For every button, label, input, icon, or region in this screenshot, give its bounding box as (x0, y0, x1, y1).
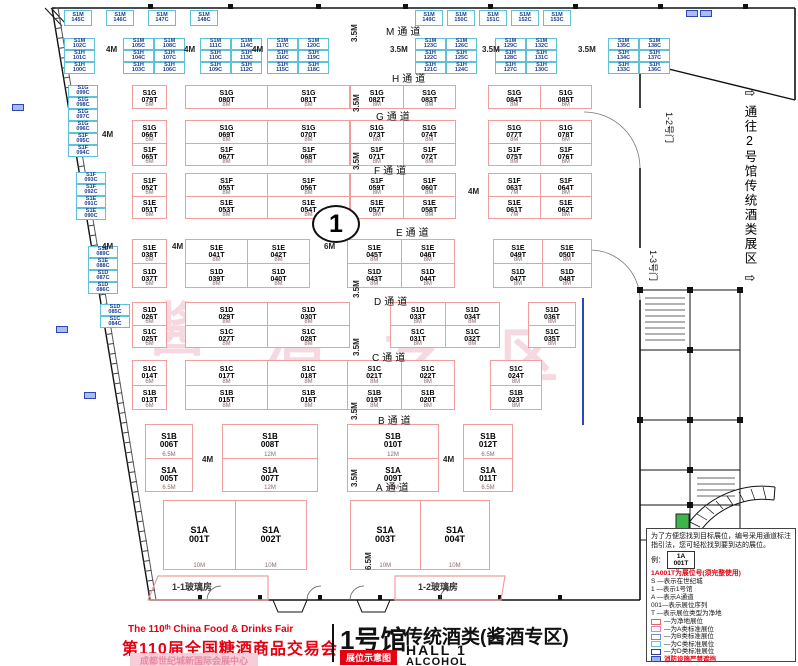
legend-note: 1A001T为展位号(须完整使用) (651, 570, 791, 578)
dimension-label-vertical: 3.5M (352, 280, 361, 298)
booth-column: S1G077T8MS1F075T8M (489, 121, 540, 165)
booth-s1h-122c[interactable]: S1H122C (415, 50, 446, 62)
booth-width-label: 8M (543, 281, 591, 287)
booth-width-label: 6M (133, 281, 166, 287)
legend-key-line: A —表示A通道 (651, 594, 791, 602)
booth-s1c-018t[interactable]: S1C018T8M (268, 361, 349, 385)
booth-column: S1C017T8MS1B015T8M (186, 361, 267, 409)
booth-s1a-003t[interactable]: S1A003T10M (351, 501, 420, 569)
booth-id: S1A001T (189, 526, 210, 544)
booth-column: S1A004T10M (420, 501, 490, 569)
fire-equipment-icon (700, 10, 712, 17)
booth-width-label: 8M (186, 341, 267, 347)
booth-s1c-022t[interactable]: S1C022T8M (402, 361, 455, 385)
booth-s1e-046t[interactable]: S1E046T8M (402, 240, 455, 263)
booth-s1m-147c[interactable]: S1M147C (148, 10, 176, 26)
booth-s1h-137c[interactable]: S1H137C (639, 50, 670, 62)
booth-s1h-106c[interactable]: S1H106C (154, 62, 185, 74)
booth-column: S1A001T10M (164, 501, 235, 569)
booth-s1h-125c[interactable]: S1H125C (446, 50, 477, 62)
booth-id: S1B012T (479, 433, 497, 449)
venue-name: 成都世纪城新国际会展中心 (130, 653, 258, 666)
booth-width-label: 8M (186, 102, 267, 108)
booth-s1m-152c[interactable]: S1M152C (511, 10, 539, 26)
booth-s1m-111c[interactable]: S1M111C (200, 38, 231, 50)
booth-column: S1D036T8MS1C035T8M (529, 303, 575, 347)
booth-s1b-012t[interactable]: S1B012T6.5M (464, 425, 512, 458)
corridor-text: 通往2号馆传统酒类展区 (741, 101, 760, 269)
booth-s1h-104c[interactable]: S1H104C (123, 50, 154, 62)
booth-column: S1G066T6MS1F065T6M (133, 121, 166, 165)
booth-column: S1D034T8MS1C032T8M (445, 303, 500, 347)
door-1-3-label: 1-3号门 (647, 250, 660, 281)
booth-s1m-132c[interactable]: S1M132C (526, 38, 557, 50)
booth-block: S1E045T8MS1D043T8MS1E046T8MS1D044T8M (347, 239, 455, 288)
booth-s1c-027t[interactable]: S1C027T8M (186, 325, 267, 348)
booth-s1g-070t[interactable]: S1G070T8M (268, 121, 349, 143)
booth-s1h-110c[interactable]: S1H110C (200, 50, 231, 62)
booth-column: S1D029T8MS1C027T8M (186, 303, 267, 347)
booth-id: S1B006T (160, 433, 178, 449)
booth-width-label: 8M (404, 159, 456, 165)
booth-width-label: 10M (351, 563, 420, 569)
legend-type-list: —为净地展位—为A类标准展位—为B类标准展位—为C类标准展位—为D类标准展位消防… (651, 618, 791, 663)
glass-house-1-label: 1-1玻璃房 (172, 580, 212, 593)
booth-block: S1E041T8MS1D039T8MS1E042T8MS1D040T8M (185, 239, 310, 288)
booth-width-label: 8M (494, 281, 542, 287)
booth-s1h-109c[interactable]: S1H109C (200, 62, 231, 74)
booth-s1f-068t[interactable]: S1F068T8M (268, 143, 349, 166)
aisle-label: G通道 (376, 108, 413, 123)
booth-s1e-041t[interactable]: S1E041T8M (186, 240, 247, 263)
booth-block: S1G079T6M (132, 85, 167, 109)
booth-s1c-031t[interactable]: S1C031T8M (391, 325, 445, 348)
booth-s1m-153c[interactable]: S1M153C (543, 10, 571, 26)
booth-s1e-051t[interactable]: S1E051T6M (133, 196, 166, 219)
booth-s1g-078t[interactable]: S1G078T6M (541, 121, 592, 143)
legend-swatch (651, 634, 661, 640)
booth-block: S1D026T6MS1C025T6M (132, 302, 167, 348)
booth-s1m-138c[interactable]: S1M138C (639, 38, 670, 50)
booth-s1e-090c[interactable]: S1E090C (76, 208, 106, 220)
booth-s1f-076t[interactable]: S1F076T6M (541, 143, 592, 166)
booth-s1g-080t[interactable]: S1G080T8M (186, 86, 267, 108)
booth-width-label: 6M (541, 159, 592, 165)
booth-id: S1A004T (444, 526, 465, 544)
booth-s1m-123c[interactable]: S1M123C (415, 38, 446, 50)
booth-column: S1F059T8MS1E057T8M (351, 174, 403, 218)
booth-s1g-081t[interactable]: S1G081T8M (268, 86, 349, 108)
booth-s1e-057t[interactable]: S1E057T8M (351, 196, 403, 219)
booth-column: S1G078T6MS1F076T6M (540, 121, 592, 165)
booth-s1m-135c[interactable]: S1M135C (608, 38, 639, 50)
booth-block: S1B012T6.5MS1A011T6.5M (463, 424, 513, 492)
booth-s1a-001t[interactable]: S1A001T10M (164, 501, 235, 569)
booth-block: S1E038T6MS1D037T6M (132, 239, 167, 288)
booth-block: S1F052T6MS1E051T6M (132, 173, 167, 219)
dimension-label-vertical: 3.5M (352, 338, 361, 356)
booth-s1m-102c[interactable]: S1M102C (64, 38, 95, 50)
booth-width-label: 8M (268, 159, 349, 165)
booth-s1d-087c[interactable]: S1D087C (88, 270, 118, 282)
arrow-right-icon: ⇨ (740, 271, 760, 284)
booth-s1f-095c[interactable]: S1F095C (68, 133, 98, 145)
booth-column: S1G069T8MS1F067T8M (186, 121, 267, 165)
aisle-label: D通道 (374, 293, 410, 308)
dimension-label: 4M (102, 242, 113, 251)
booth-s1d-044t[interactable]: S1D044T8M (402, 263, 455, 287)
booth-width-label: 6M (541, 102, 592, 108)
legend-example-top: 1A (677, 553, 685, 560)
booth-id: S1A011T (479, 467, 497, 483)
dimension-label-vertical: 3.5M (352, 152, 361, 170)
booth-column: S1G085T6M (540, 86, 592, 108)
booth-s1c-017t[interactable]: S1C017T8M (186, 361, 267, 385)
booth-s1m-151c[interactable]: S1M151C (479, 10, 507, 26)
booth-width-label: 8M (446, 341, 500, 347)
booth-column: S1E050T8MS1D048T8M (542, 240, 591, 287)
booth-block: S1C014T6MS1B013T6M (132, 360, 167, 410)
dimension-label: 4M (202, 455, 213, 464)
booth-s1g-079t[interactable]: S1G079T6M (133, 86, 166, 108)
booth-width-label: 8M (248, 281, 309, 287)
booth-block: S1D029T8MS1C027T8MS1D030T8MS1C028T8M (185, 302, 350, 348)
booth-column: S1D033T8MS1C031T8M (391, 303, 445, 347)
booth-width-label: 6M (133, 212, 166, 218)
booth-s1d-047t[interactable]: S1D047T8M (494, 263, 542, 287)
booth-column: S1F052T6MS1E051T6M (133, 174, 166, 218)
dimension-label: 4M (252, 45, 263, 54)
booth-s1e-053t[interactable]: S1E053T8M (186, 196, 267, 219)
booth-block: S1D036T8MS1C035T8M (528, 302, 576, 348)
booth-id: S1A002T (260, 526, 281, 544)
booth-s1g-073t[interactable]: S1G073T8M (351, 121, 403, 143)
booth-width-label: 8M (541, 212, 592, 218)
booth-s1d-029t[interactable]: S1D029T8M (186, 303, 267, 325)
booth-s1h-115c[interactable]: S1H115C (267, 62, 298, 74)
dimension-label-vertical: 6.5M (364, 552, 373, 570)
booth-width-label: 6M (133, 403, 166, 409)
booth-id: S1B008T (261, 433, 279, 449)
booth-width-label: 6M (133, 102, 166, 108)
booth-block: S1C024T8MS1B023T8M (490, 360, 542, 410)
arrow-right-icon: ⇨ (740, 86, 760, 99)
dimension-label-vertical: 3.5M (350, 469, 359, 487)
booth-s1d-037t[interactable]: S1D037T6M (133, 263, 166, 287)
booth-width-label: 8M (186, 212, 267, 218)
dimension-label-vertical: 3.5M (352, 94, 361, 112)
booth-width-label: 6M (133, 341, 166, 347)
booth-width-label: 6M (133, 159, 166, 165)
booth-block: S1E049T8MS1D047T8MS1E050T8MS1D048T8M (493, 239, 592, 288)
booth-s1a-004t[interactable]: S1A004T10M (421, 501, 490, 569)
dimension-label: 3.5M (390, 45, 408, 54)
booth-s1e-042t[interactable]: S1E042T8M (248, 240, 309, 263)
booth-s1g-097c[interactable]: S1G097C (68, 109, 98, 121)
booth-column: S1B006T6.5MS1A005T6.5M (146, 425, 192, 491)
booth-width-label: 8M (268, 403, 349, 409)
legend-key-line: 001—表示展位序列 (651, 602, 791, 610)
aisle-label: B通道 (378, 412, 414, 427)
booth-s1g-077t[interactable]: S1G077T8M (489, 121, 540, 143)
booth-width-label: 12M (223, 485, 317, 491)
booth-s1b-020t[interactable]: S1B020T8M (402, 385, 455, 410)
booth-column: S1F063T7MS1E061T7M (489, 174, 540, 218)
dimension-label: 3.5M (482, 45, 500, 54)
booth-s1f-092c[interactable]: S1F092C (76, 184, 106, 196)
booth-width-label: 7M (489, 212, 540, 218)
legend-intro: 为了方便您找到目标展位，编号采用通道标注指引法，您可轻松找到要到达的展位。 (651, 532, 791, 550)
booth-s1h-119c[interactable]: S1H119C (298, 50, 329, 62)
booth-s1f-055t[interactable]: S1F055T8M (186, 174, 267, 196)
booth-width-label: 8M (489, 102, 540, 108)
booth-s1a-007t[interactable]: S1A007T12M (223, 458, 317, 492)
booth-s1h-131c[interactable]: S1H131C (526, 50, 557, 62)
booth-s1g-084t[interactable]: S1G084T8M (489, 86, 540, 108)
corridor-note: ⇨ 通往2号馆传统酒类展区 ⇨ (740, 86, 760, 284)
booth-column: S1C022T8MS1B020T8M (401, 361, 455, 409)
booth-block: S1G069T8MS1F067T8MS1G070T8MS1F068T8M (185, 120, 350, 166)
booth-s1c-021t[interactable]: S1C021T8M (348, 361, 401, 385)
booth-column: S1E042T8MS1D040T8M (247, 240, 309, 287)
legend-example-bottom: 001T (674, 560, 689, 567)
booth-s1m-148c[interactable]: S1M148C (190, 10, 218, 26)
booth-s1d-034t[interactable]: S1D034T8M (446, 303, 500, 325)
legend-type-label: —为净地展位 (664, 618, 703, 626)
dimension-label: 4M (468, 187, 479, 196)
booth-s1f-093c[interactable]: S1F093C (76, 172, 106, 184)
booth-s1b-006t[interactable]: S1B006T6.5M (146, 425, 192, 458)
booth-s1h-127c[interactable]: S1H127C (495, 62, 526, 74)
dimension-label: 3.5M (578, 45, 596, 54)
booth-s1e-062t[interactable]: S1E062T8M (541, 196, 592, 219)
booth-s1f-052t[interactable]: S1F052T6M (133, 174, 166, 196)
booth-s1f-067t[interactable]: S1F067T8M (186, 143, 267, 166)
booth-width-label: 8M (402, 281, 455, 287)
booth-s1h-116c[interactable]: S1H116C (267, 50, 298, 62)
booth-s1a-005t[interactable]: S1A005T6.5M (146, 458, 192, 492)
booth-s1f-072t[interactable]: S1F072T8M (404, 143, 456, 166)
booth-width-label: 8M (489, 159, 540, 165)
booth-block: S1G066T6MS1F065T6M (132, 120, 167, 166)
booth-s1h-136c[interactable]: S1H136C (639, 62, 670, 74)
booth-block: S1C021T8MS1B019T8MS1C022T8MS1B020T8M (347, 360, 455, 410)
legend-type-label: —为D类标准展位 (664, 648, 714, 656)
booth-s1e-091c[interactable]: S1E091C (76, 196, 106, 208)
booth-s1d-030t[interactable]: S1D030T8M (268, 303, 349, 325)
booth-s1m-146c[interactable]: S1M146C (106, 10, 134, 26)
glass-house-2-label: 1-2玻璃房 (418, 580, 458, 593)
booth-s1d-036t[interactable]: S1D036T8M (529, 303, 575, 325)
booth-s1m-117c[interactable]: S1M117C (267, 38, 298, 50)
dimension-label: 4M (172, 242, 183, 251)
legend: 为了方便您找到目标展位，编号采用通道标注指引法，您可轻松找到要到达的展位。 例：… (646, 528, 796, 662)
booth-s1h-118c[interactable]: S1H118C (298, 62, 329, 74)
booth-s1b-023t[interactable]: S1B023T8M (491, 385, 541, 410)
booth-column: S1E041T8MS1D039T8M (186, 240, 247, 287)
booth-s1d-039t[interactable]: S1D039T8M (186, 263, 247, 287)
dimension-label: 4M (102, 130, 113, 139)
legend-type-label: —为C类标准展位 (664, 641, 714, 649)
booth-s1c-014t[interactable]: S1C014T6M (133, 361, 166, 385)
booth-s1b-013t[interactable]: S1B013T6M (133, 385, 166, 410)
booth-width-label: 10M (164, 563, 235, 569)
booth-s1g-099c[interactable]: S1G099C (68, 85, 98, 97)
booth-s1c-024t[interactable]: S1C024T8M (491, 361, 541, 385)
booth-s1g-083t[interactable]: S1G083T8M (404, 86, 456, 108)
legend-type-row: —为净地展位 (651, 618, 791, 626)
booth-s1m-126c[interactable]: S1M126C (446, 38, 477, 50)
booth-s1e-050t[interactable]: S1E050T8M (543, 240, 591, 263)
booth-s1c-032t[interactable]: S1C032T8M (446, 325, 500, 348)
booth-width-label: 8M (186, 281, 247, 287)
aisle-label: M通道 (386, 23, 423, 38)
booth-s1e-049t[interactable]: S1E049T8M (494, 240, 542, 263)
booth-s1h-134c[interactable]: S1H134C (608, 50, 639, 62)
booth-block: S1G077T8MS1F075T8MS1G078T6MS1F076T6M (488, 120, 592, 166)
booth-column: S1D030T8MS1C028T8M (267, 303, 349, 347)
booth-s1b-016t[interactable]: S1B016T8M (268, 385, 349, 410)
booth-s1d-048t[interactable]: S1D048T8M (543, 263, 591, 287)
dimension-label-vertical: 3.5M (350, 24, 359, 42)
booth-block: S1A001T10MS1A002T10M (163, 500, 307, 570)
booth-s1g-085t[interactable]: S1G085T6M (541, 86, 592, 108)
booth-s1c-084c[interactable]: S1C084C (100, 316, 130, 328)
dimension-label: 4M (443, 455, 454, 464)
booth-s1c-035t[interactable]: S1C035T8M (529, 325, 575, 348)
aisle-label: C通道 (372, 349, 408, 364)
booth-s1e-038t[interactable]: S1E038T6M (133, 240, 166, 263)
booth-s1m-120c[interactable]: S1M120C (298, 38, 329, 50)
booth-block: S1G082T8MS1G083T8M (350, 85, 456, 109)
booth-s1g-066t[interactable]: S1G066T6M (133, 121, 166, 143)
legend-type-label: 消防设施严禁遮挡 (664, 656, 716, 664)
booth-s1b-010t[interactable]: S1B010T12M (348, 425, 438, 458)
booth-id: S1A007T (261, 467, 279, 483)
fair-name-en: The 110ᵗʰ China Food & Drinks Fair (128, 624, 293, 635)
title-block: The 110ᵗʰ China Food & Drinks Fair 第110届… (0, 616, 646, 666)
booth-s1a-011t[interactable]: S1A011T6.5M (464, 458, 512, 492)
booth-block: S1B008T12MS1A007T12M (222, 424, 318, 492)
booth-s1h-100c[interactable]: S1H100C (64, 62, 95, 74)
zone-1-number: 1 (329, 210, 343, 239)
booth-s1g-098c[interactable]: S1G098C (68, 97, 98, 109)
booth-s1d-086c[interactable]: S1D086C (88, 282, 118, 294)
booth-column: S1A002T10M (235, 501, 307, 569)
legend-swatch (651, 619, 661, 625)
legend-type-row: —为D类标准展位 (651, 648, 791, 656)
legend-type-row: —为A类标准展位 (651, 626, 791, 634)
legend-swatch (651, 649, 661, 655)
booth-width-label: 10M (421, 563, 490, 569)
booth-s1g-074t[interactable]: S1G074T8M (404, 121, 456, 143)
door-1-2-label: 1-2号门 (663, 112, 676, 143)
legend-key-line: S —表示在世纪城 (651, 578, 791, 586)
booth-s1h-133c[interactable]: S1H133C (608, 62, 639, 74)
booth-column: S1D026T6MS1C025T6M (133, 303, 166, 347)
booth-block: S1G080T8MS1G081T8M (185, 85, 350, 109)
booth-s1h-103c[interactable]: S1H103C (123, 62, 154, 74)
booth-id: S1A003T (375, 526, 396, 544)
booth-s1h-124c[interactable]: S1H124C (446, 62, 477, 74)
fire-equipment-icon (686, 10, 698, 17)
booth-s1m-150c[interactable]: S1M150C (447, 10, 475, 26)
booth-s1h-101c[interactable]: S1H101C (64, 50, 95, 62)
fire-equipment-icon (12, 104, 24, 111)
booth-s1m-108c[interactable]: S1M108C (154, 38, 185, 50)
booth-s1d-026t[interactable]: S1D026T6M (133, 303, 166, 325)
legend-type-row: —为C类标准展位 (651, 641, 791, 649)
booth-width-label: 8M (268, 341, 349, 347)
booth-s1m-145c[interactable]: S1M145C (64, 10, 92, 26)
booth-width-label: 6.5M (146, 485, 192, 491)
booth-s1f-056t[interactable]: S1F056T8M (268, 174, 349, 196)
booth-s1h-130c[interactable]: S1H130C (526, 62, 557, 74)
booth-column: S1C014T6MS1B013T6M (133, 361, 166, 409)
booth-width-label: 8M (529, 341, 575, 347)
booth-s1m-105c[interactable]: S1M105C (123, 38, 154, 50)
booth-s1g-096c[interactable]: S1G096C (68, 121, 98, 133)
legend-key-line: 1 —表示1号馆 (651, 586, 791, 594)
dimension-label: 6M (324, 242, 335, 251)
booth-block: S1G073T8MS1F071T8MS1G074T8MS1F072T8M (350, 120, 456, 166)
booth-column: S1B008T12MS1A007T12M (223, 425, 317, 491)
legend-key-list: S —表示在世纪城1 —表示1号馆A —表示A通道001—表示展位序列T —表示… (651, 578, 791, 618)
booth-width-label: 8M (186, 403, 267, 409)
booth-width-label: 8M (186, 159, 267, 165)
booth-s1f-064t[interactable]: S1F064T8M (541, 174, 592, 196)
booth-s1e-088c[interactable]: S1E088C (88, 258, 118, 270)
booth-s1g-069t[interactable]: S1G069T8M (186, 121, 267, 143)
booth-column: S1B012T6.5MS1A011T6.5M (464, 425, 512, 491)
booth-column: S1A003T10M (351, 501, 420, 569)
booth-s1f-063t[interactable]: S1F063T7M (489, 174, 540, 196)
booth-s1c-028t[interactable]: S1C028T8M (268, 325, 349, 348)
booth-s1b-015t[interactable]: S1B015T8M (186, 385, 267, 410)
fire-equipment-icon (84, 392, 96, 399)
booth-column: S1E049T8MS1D047T8M (494, 240, 542, 287)
booth-width-label: 8M (491, 403, 541, 409)
booth-s1f-059t[interactable]: S1F059T8M (351, 174, 403, 196)
booth-column: S1F060T8MS1E058T8M (403, 174, 456, 218)
booth-s1h-112c[interactable]: S1H112C (231, 62, 262, 74)
booth-s1e-058t[interactable]: S1E058T8M (404, 196, 456, 219)
booth-s1c-025t[interactable]: S1C025T6M (133, 325, 166, 348)
booth-width-label: 10M (236, 563, 307, 569)
floor-plan-page: S1G079T6MS1G080T8MS1G081T8MS1G082T8MS1G0… (0, 0, 798, 666)
legend-type-row: 消防设施严禁遮挡 (651, 656, 791, 664)
booth-s1e-045t[interactable]: S1E045T8M (348, 240, 401, 263)
booth-s1f-065t[interactable]: S1F065T6M (133, 143, 166, 166)
booth-s1e-061t[interactable]: S1E061T7M (489, 196, 540, 219)
zone-1-marker: 1 (312, 205, 360, 243)
booth-column: S1G079T6M (133, 86, 166, 108)
booth-s1h-107c[interactable]: S1H107C (154, 50, 185, 62)
legend-type-label: —为A类标准展位 (664, 626, 714, 634)
booth-column: S1G083T8M (403, 86, 456, 108)
booth-block: S1F063T7MS1E061T7MS1F064T8MS1E062T8M (488, 173, 592, 219)
booth-s1d-085c[interactable]: S1D085C (100, 304, 130, 316)
map-badge: 展位示意图 (340, 650, 397, 665)
booth-s1d-040t[interactable]: S1D040T8M (248, 263, 309, 287)
booth-s1f-094c[interactable]: S1F094C (68, 145, 98, 157)
booth-s1b-008t[interactable]: S1B008T12M (223, 425, 317, 458)
booth-s1f-060t[interactable]: S1F060T8M (404, 174, 456, 196)
booth-s1a-002t[interactable]: S1A002T10M (236, 501, 307, 569)
booth-s1f-075t[interactable]: S1F075T8M (489, 143, 540, 166)
booth-block: S1F059T8MS1E057T8MS1F060T8MS1E058T8M (350, 173, 456, 219)
booth-column: S1C024T8MS1B023T8M (491, 361, 541, 409)
